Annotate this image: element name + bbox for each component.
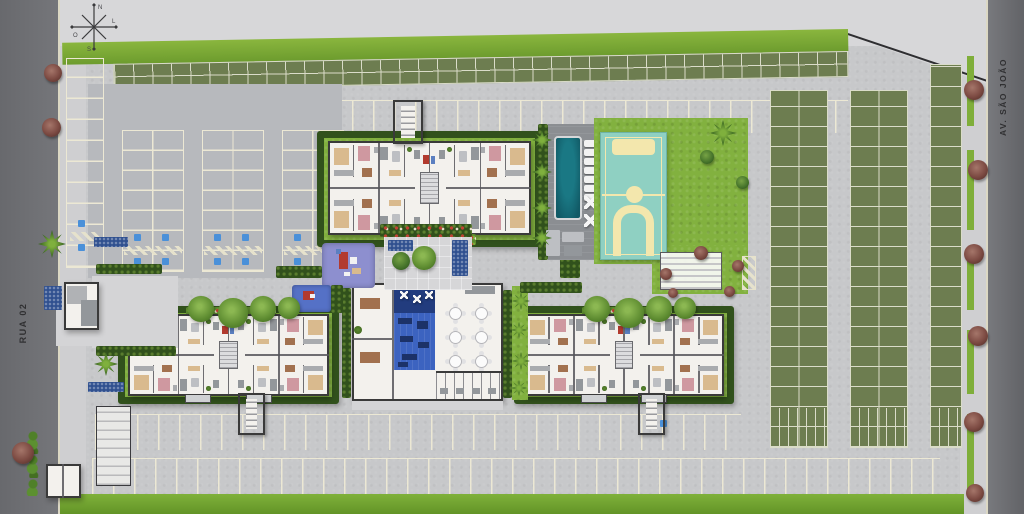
fixture: [440, 388, 448, 394]
bed: [510, 211, 525, 228]
party-table: [475, 331, 488, 344]
table: [360, 298, 380, 309]
bed: [510, 148, 525, 165]
play-structure: [310, 294, 315, 298]
entry-stair: [638, 393, 665, 435]
court-center-circle: [626, 186, 643, 203]
table: [558, 365, 568, 372]
bed: [703, 320, 718, 335]
bed: [308, 320, 323, 335]
bed: [652, 366, 664, 371]
bed: [703, 375, 718, 390]
wardrobe: [481, 223, 485, 230]
tree-icon: [968, 160, 988, 180]
wardrobe: [698, 366, 718, 371]
party-table: [449, 355, 462, 368]
wardrobe: [303, 366, 323, 371]
party-table: [475, 307, 488, 320]
gym-equipment: [398, 362, 408, 367]
bed: [287, 378, 299, 391]
play-structure: [344, 272, 350, 276]
wardrobe: [698, 339, 718, 344]
play-structure: [352, 268, 361, 274]
gym-equipment: [400, 336, 413, 342]
tree-icon: [660, 268, 672, 280]
tree-icon: [964, 80, 984, 100]
hedge-strip: [276, 266, 322, 278]
accessible-stall-marker: [214, 258, 221, 265]
tree-icon: [614, 298, 644, 328]
plant-pot: [602, 386, 607, 391]
accessible-stall-marker: [294, 258, 301, 265]
kitchen-counter: [609, 322, 615, 330]
kitchen-counter: [471, 216, 479, 229]
entry-stair: [238, 393, 265, 435]
table: [558, 338, 568, 345]
wall: [62, 464, 64, 498]
bed: [358, 146, 370, 161]
accessible-stall-marker: [162, 258, 169, 265]
wall: [245, 354, 329, 356]
restrooms: [436, 371, 501, 399]
street-label-right: AV. SÃO JOÃO: [998, 52, 1008, 142]
compass-west: O: [73, 33, 78, 39]
bed: [489, 146, 501, 161]
wardrobe: [374, 223, 378, 230]
palm-tree-icon: [512, 352, 530, 370]
wardrobe: [505, 200, 525, 205]
decor-red: [618, 326, 624, 333]
swimming-pool: [554, 136, 582, 220]
palm-tree-icon: [532, 228, 552, 248]
game-table: [400, 291, 408, 299]
wardrobe: [334, 200, 354, 205]
tree-icon: [412, 246, 436, 270]
compass-rose: N L S O: [66, 0, 124, 54]
tree-icon: [668, 288, 678, 298]
tree-icon: [278, 297, 300, 319]
kitchen-counter: [609, 380, 615, 388]
sofa: [258, 378, 266, 388]
wardrobe: [505, 170, 525, 175]
hedge-strip: [520, 282, 582, 293]
wardrobe: [280, 385, 284, 391]
sofa: [191, 323, 199, 333]
moto-stall-band: [850, 408, 908, 448]
play-structure: [350, 257, 357, 264]
party-table: [449, 307, 462, 320]
crosswalk-hatch: [124, 246, 182, 255]
tree-icon: [700, 150, 714, 164]
wall: [648, 365, 649, 393]
table: [285, 365, 295, 372]
bed: [257, 366, 269, 371]
wall: [203, 365, 204, 393]
kitchen-counter: [576, 319, 584, 330]
tree-icon: [694, 246, 708, 260]
kitchen-counter: [270, 379, 278, 390]
entry-stair: [393, 100, 423, 144]
bed: [287, 319, 299, 332]
tree-icon: [736, 176, 749, 189]
kitchen-counter: [576, 379, 584, 390]
wall: [526, 354, 610, 356]
wardrobe: [334, 170, 354, 175]
table: [680, 365, 690, 372]
tree-icon: [250, 296, 276, 322]
play-structure: [339, 252, 348, 269]
clubhouse-hedge: [342, 288, 351, 398]
paver-parking-column: [770, 90, 828, 448]
sofa: [392, 151, 400, 162]
plant-pot: [354, 326, 362, 334]
paver-parking-column: [930, 64, 962, 448]
wardrobe: [481, 147, 485, 154]
bed: [308, 375, 323, 390]
accessible-stall-marker: [242, 234, 249, 241]
table: [487, 199, 497, 207]
accessible-stall-marker: [214, 234, 221, 241]
play-structure: [336, 249, 341, 254]
palm-tree-icon: [532, 198, 552, 218]
grass-strip-bottom: [60, 494, 964, 514]
wall: [598, 365, 599, 393]
compass-south: S: [87, 47, 91, 53]
bed: [652, 339, 664, 344]
tree-icon: [42, 118, 61, 137]
bed: [334, 148, 349, 165]
wardrobe: [675, 319, 679, 325]
wardrobe: [303, 339, 323, 344]
hedge-strip: [331, 285, 343, 313]
bed: [257, 339, 269, 344]
playground-mat: [322, 243, 375, 288]
entrance-walkway: [92, 276, 178, 348]
crosswalk-hatch: [204, 246, 262, 255]
game-table: [425, 291, 433, 299]
gym-equipment: [417, 321, 428, 329]
bed: [584, 366, 596, 371]
palm-tree-icon: [532, 162, 552, 182]
kitchen-counter: [665, 379, 673, 390]
table: [680, 338, 690, 345]
moto-stall-band: [770, 408, 828, 448]
flower-bed: [88, 382, 124, 392]
accessible-stall-marker: [78, 244, 85, 251]
kitchen-counter: [439, 150, 445, 159]
bed: [389, 170, 401, 175]
balcony: [185, 395, 211, 403]
kitchen-counter: [238, 380, 244, 388]
bed: [458, 200, 470, 205]
wardrobe: [374, 147, 378, 154]
tree-icon: [218, 298, 248, 328]
outdoor-sofa: [546, 230, 560, 256]
wall: [404, 145, 405, 177]
bed: [554, 319, 566, 332]
game-table: [413, 295, 421, 303]
clubhouse-hedge: [503, 290, 512, 398]
flower-bed: [94, 237, 128, 247]
kitchen-counter: [213, 380, 219, 388]
table: [362, 168, 372, 176]
crosswalk-hatch: [742, 256, 756, 290]
compass-north: N: [98, 5, 102, 11]
decor-red: [423, 155, 429, 163]
bed: [389, 200, 401, 205]
plant-pot: [407, 147, 412, 152]
court-key-band: [612, 139, 655, 155]
kitchen-counter: [180, 319, 188, 330]
tree-icon: [964, 244, 984, 264]
bed: [358, 215, 370, 230]
entrance-hedge: [96, 264, 162, 274]
plaza-hedge: [380, 224, 472, 237]
sofa: [653, 323, 661, 333]
walkway: [352, 401, 503, 410]
party-table: [449, 331, 462, 344]
shrub-row: [26, 430, 40, 496]
decor-blue: [230, 327, 234, 334]
party-table: [475, 355, 488, 368]
wall: [648, 317, 649, 345]
stair-core: [615, 341, 633, 369]
bed: [188, 366, 200, 371]
wardrobe: [530, 339, 550, 344]
kitchen-counter: [471, 147, 479, 160]
court-key-arch: [613, 205, 654, 256]
tree-icon: [966, 484, 984, 502]
tree-icon: [732, 260, 744, 272]
wall: [640, 354, 724, 356]
wall: [454, 145, 455, 177]
kitchen-counter: [633, 380, 639, 388]
tree-icon: [968, 326, 988, 346]
wardrobe: [134, 366, 154, 371]
fixture: [456, 388, 464, 394]
accessible-stall-marker: [162, 234, 169, 241]
entrance-hedge: [96, 346, 176, 356]
bed: [682, 319, 694, 332]
wardrobe: [569, 319, 573, 325]
accessible-stall-marker: [78, 220, 85, 227]
bed: [458, 170, 470, 175]
accessible-stall-marker: [134, 234, 141, 241]
palm-tree-icon: [512, 292, 530, 310]
kitchen-counter: [270, 319, 278, 330]
outdoor-table: [564, 246, 582, 256]
fixture: [488, 388, 496, 394]
kitchen-counter: [213, 322, 219, 330]
sofa: [653, 378, 661, 388]
flower-bed: [452, 240, 468, 276]
bed: [489, 215, 501, 230]
paver-parking-column: [850, 90, 908, 448]
accessible-stall-marker: [294, 234, 301, 241]
table: [360, 352, 380, 363]
accessible-stall-marker: [242, 258, 249, 265]
flower-bed: [44, 286, 62, 310]
kitchen-counter: [665, 319, 673, 330]
tree-icon: [724, 286, 735, 297]
table: [285, 338, 295, 345]
compass-east: L: [112, 19, 116, 25]
sofa: [459, 151, 467, 162]
sofa: [587, 378, 595, 388]
balcony: [581, 395, 607, 403]
moto-stall-band: [930, 408, 962, 448]
parking-row-bottom-lower: [92, 458, 940, 496]
wall: [253, 317, 254, 345]
bed: [584, 339, 596, 344]
decor-blue: [625, 327, 629, 334]
gym-equipment: [398, 318, 412, 324]
kitchen-counter: [414, 150, 420, 159]
tree-icon: [188, 296, 214, 322]
stair-core: [219, 341, 237, 369]
stair-core: [420, 172, 438, 204]
table: [362, 199, 372, 207]
bed: [158, 378, 170, 391]
kitchen-counter: [180, 379, 188, 390]
wardrobe: [569, 385, 573, 391]
tree-icon: [674, 297, 696, 319]
wall: [352, 338, 392, 340]
bed: [682, 378, 694, 391]
tree-icon: [392, 252, 410, 270]
wardrobe: [675, 385, 679, 391]
gym-equipment: [418, 342, 429, 348]
wardrobe: [530, 366, 550, 371]
decor-red: [222, 326, 228, 333]
tree-icon: [646, 296, 672, 322]
sofa: [587, 323, 595, 333]
gatehouse-roof: [81, 300, 97, 326]
tree-icon: [44, 64, 62, 82]
bed: [530, 320, 545, 335]
table: [162, 365, 172, 372]
gym-equipment: [402, 354, 417, 360]
access-ramp: [96, 406, 131, 486]
flower-bed: [388, 240, 413, 251]
site-plan: RUA 02 AV. SÃO JOÃO N L S O: [0, 0, 1024, 514]
bed: [530, 375, 545, 390]
outdoor-sofa: [562, 232, 584, 242]
street-label-left: RUA 02: [18, 293, 28, 353]
sofa: [191, 378, 199, 388]
tree-icon: [584, 296, 610, 322]
bed: [334, 211, 349, 228]
wardrobe: [173, 385, 177, 391]
wall: [330, 187, 415, 189]
table: [487, 168, 497, 176]
wall: [446, 187, 531, 189]
sofa: [258, 323, 266, 333]
bed: [188, 339, 200, 344]
kitchen-counter: [380, 147, 388, 160]
wall: [253, 365, 254, 393]
decor-blue: [431, 156, 435, 164]
palm-tree-icon: [532, 130, 552, 150]
plant-pot: [246, 386, 251, 391]
curb-right: [986, 0, 988, 514]
bed: [554, 378, 566, 391]
fixture: [472, 388, 480, 394]
wardrobe: [280, 319, 284, 325]
bed: [134, 375, 149, 390]
tree-icon: [964, 412, 984, 432]
tree-icon: [12, 442, 34, 464]
